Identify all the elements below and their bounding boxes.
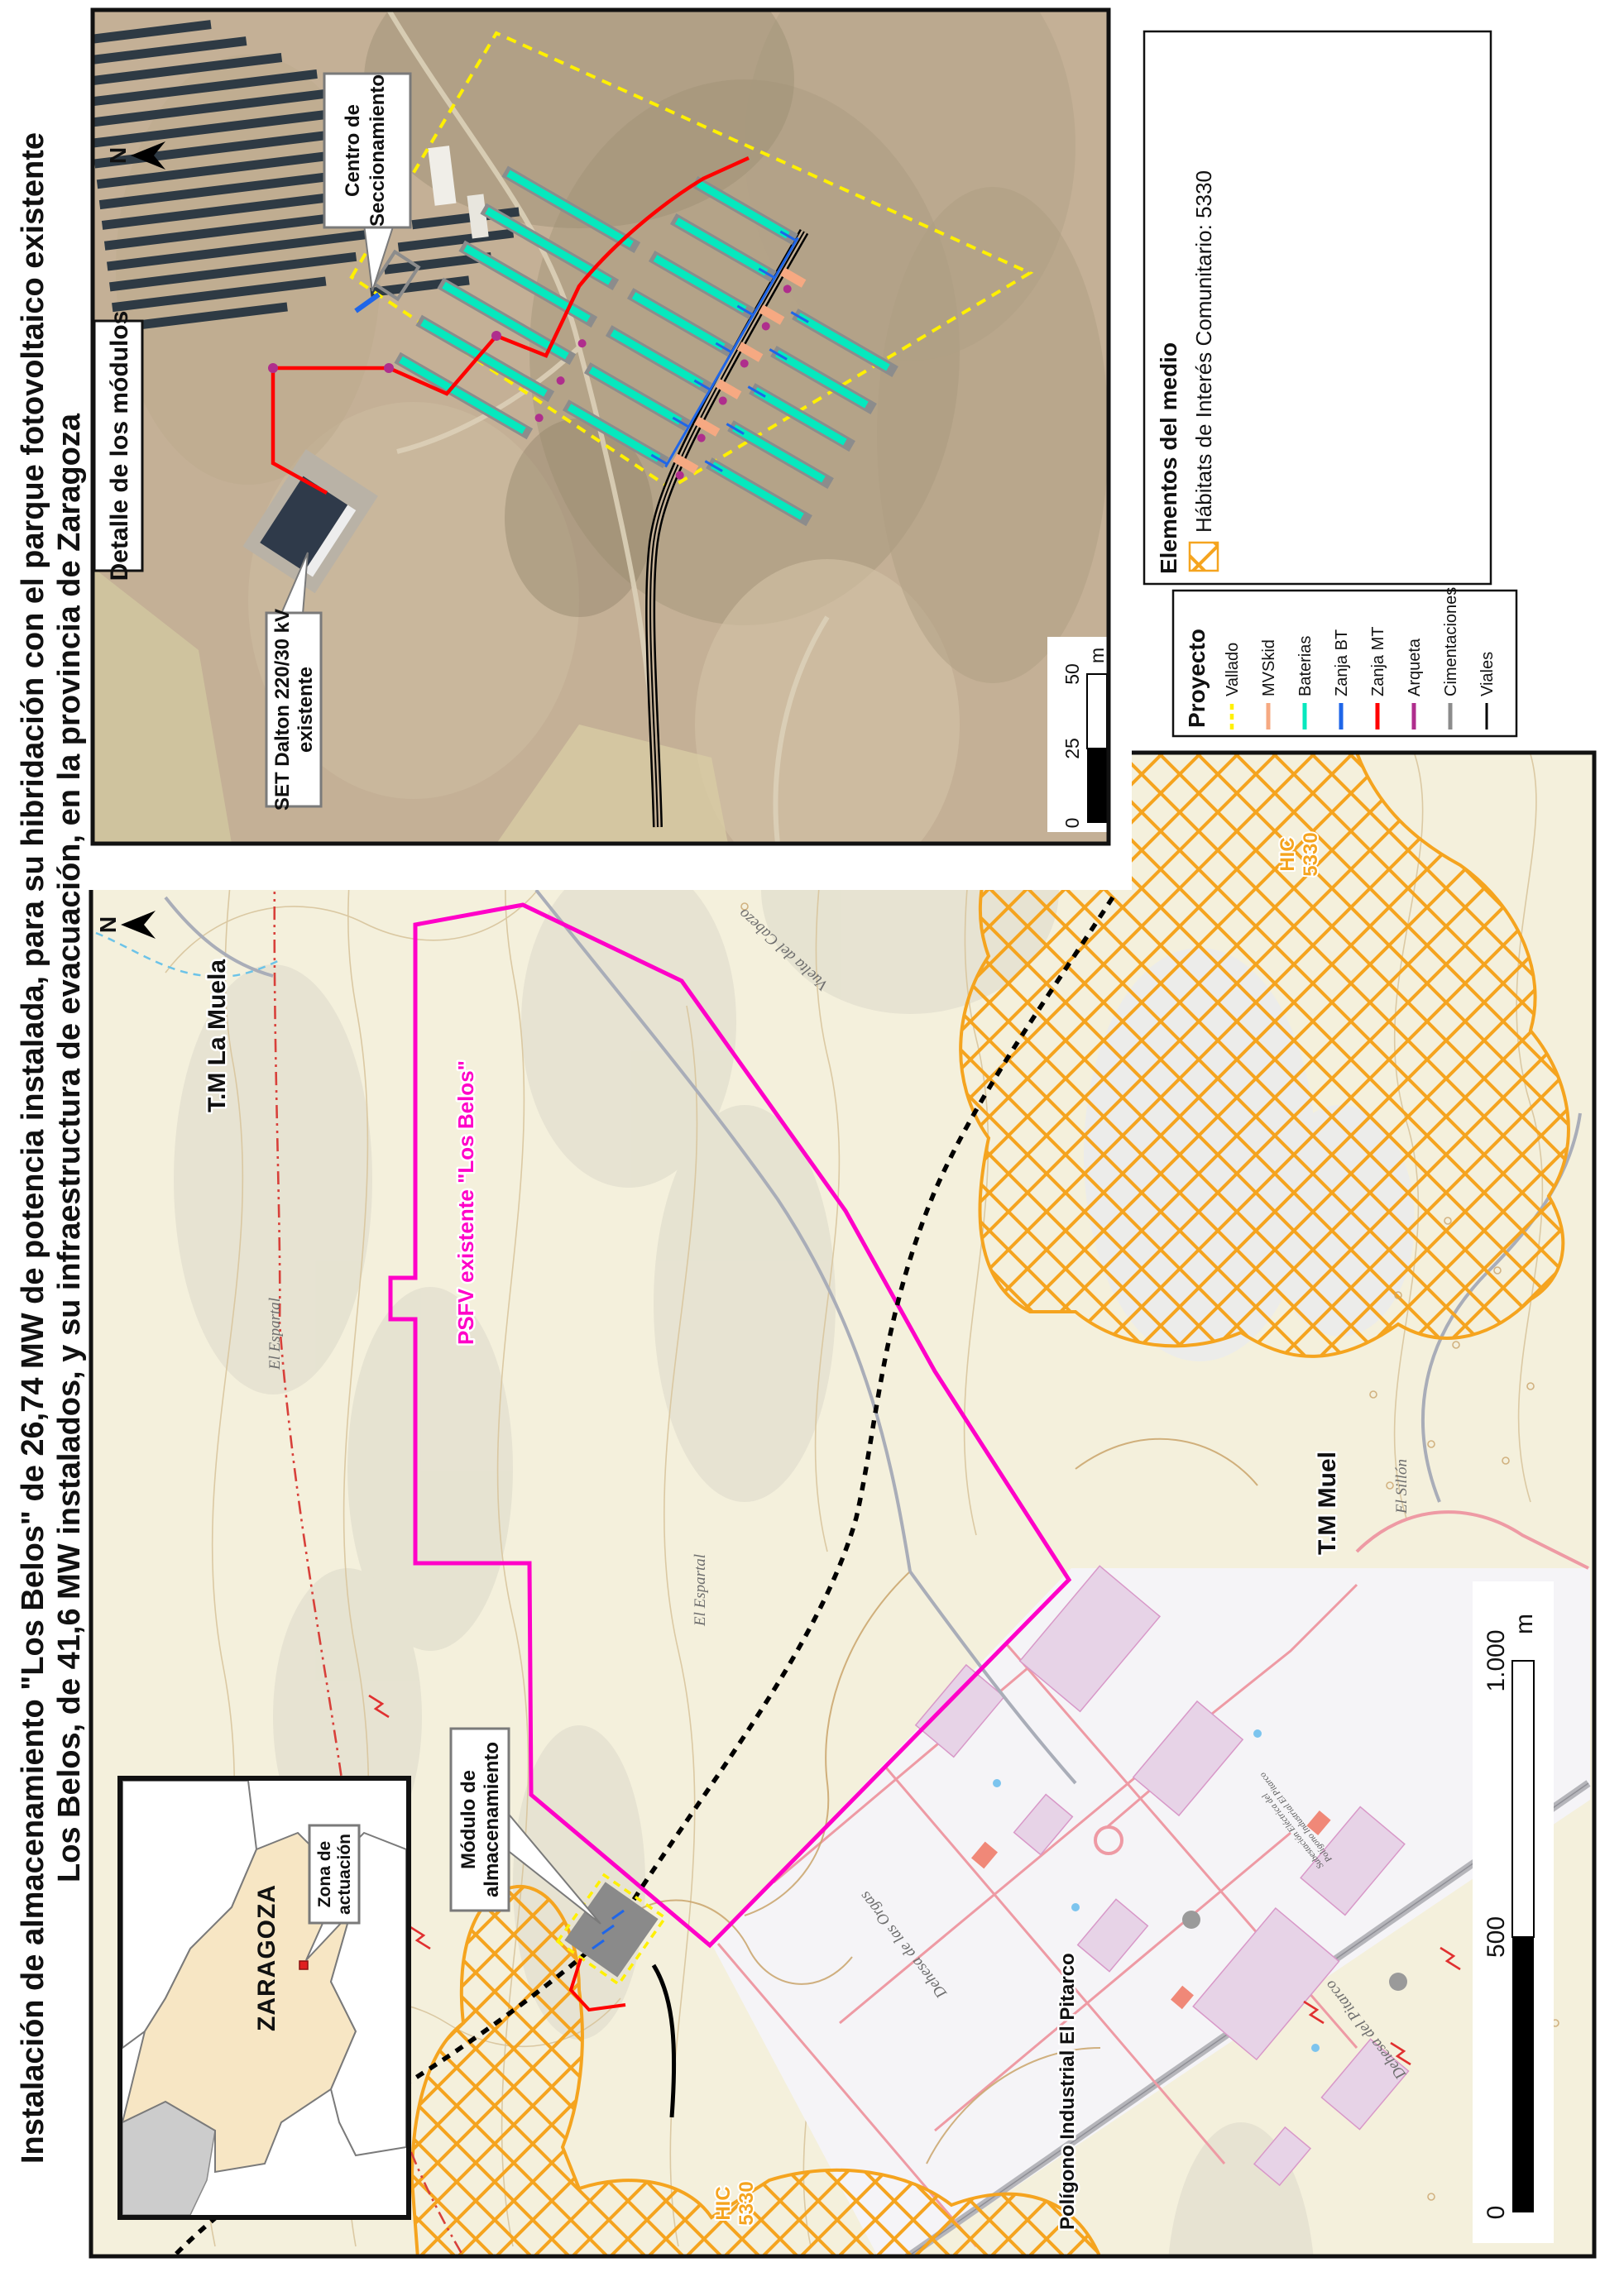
svg-text:Zona de: Zona de xyxy=(315,1841,334,1908)
svg-text:Vallado: Vallado xyxy=(1224,643,1242,696)
label-tm-la-muela: T.M La Muela xyxy=(204,959,231,1112)
svg-text:Arqueta: Arqueta xyxy=(1406,638,1424,696)
roundabout xyxy=(1095,1827,1122,1854)
svg-text:Hábitats de Interés Comunitari: Hábitats de Interés Comunitario: 5330 xyxy=(1191,170,1216,533)
svg-text:actuación: actuación xyxy=(335,1834,354,1915)
svg-text:Zanja MT: Zanja MT xyxy=(1369,627,1387,696)
inset-site-dot xyxy=(299,1961,308,1969)
main-scalebar: 0 500 1.000 m xyxy=(1473,1581,1554,2243)
svg-text:HIC: HIC xyxy=(712,2186,735,2220)
svg-text:almacenamiento: almacenamiento xyxy=(481,1742,503,1897)
title-line-2: Los Belos, de 41,6 MW instalados, y su i… xyxy=(52,413,87,1882)
label-hic-small: HIC 5330 xyxy=(712,2181,758,2225)
svg-text:Detalle de los módulos: Detalle de los módulos xyxy=(106,311,133,581)
svg-text:MVSkid: MVSkid xyxy=(1260,639,1278,696)
svg-text:500: 500 xyxy=(1483,1916,1510,1958)
svg-text:Baterias: Baterias xyxy=(1296,636,1315,696)
label-tm-muel: T.M Muel xyxy=(1314,1452,1341,1555)
svg-text:SET Dalton 220/30 kV: SET Dalton 220/30 kV xyxy=(271,609,294,811)
label-el-sillon: El Sillón xyxy=(1393,1459,1411,1514)
svg-text:m: m xyxy=(1511,1614,1538,1634)
svg-text:0: 0 xyxy=(1483,2206,1510,2220)
svg-text:1.000: 1.000 xyxy=(1483,1629,1510,1691)
svg-text:Seccionamiento: Seccionamiento xyxy=(366,74,389,227)
svg-text:m: m xyxy=(1086,648,1108,663)
title-line-1: Instalación de almacenamiento "Los Belos… xyxy=(16,132,50,2164)
svg-text:Centro de: Centro de xyxy=(342,104,364,197)
svg-text:5330: 5330 xyxy=(1300,832,1322,876)
svg-text:N: N xyxy=(95,916,121,933)
map-sheet: T.M La Muela T.M Muel PSFV existente "Lo… xyxy=(0,0,1624,2296)
svg-text:Cimentaciones: Cimentaciones xyxy=(1442,587,1460,696)
label-psfv: PSFV existente "Los Belos" xyxy=(453,1060,478,1345)
page-title: Instalación de almacenamiento "Los Belos… xyxy=(16,132,87,2164)
svg-text:N: N xyxy=(105,147,131,164)
label-hic-large: HIC 5330 xyxy=(1277,832,1322,876)
svg-text:Viales: Viales xyxy=(1478,652,1497,696)
legend-item-habitats: Hábitats de Interés Comunitario: 5330 xyxy=(1190,170,1218,571)
detail-panel: Centro de Seccionamiento SET Dalton 220/… xyxy=(79,0,1122,890)
label-poligono: Polígono Industrial El Pitarco xyxy=(1056,1953,1079,2230)
svg-text:Módulo de: Módulo de xyxy=(457,1770,480,1869)
svg-text:0: 0 xyxy=(1061,818,1083,829)
detail-header: Detalle de los módulos xyxy=(94,311,142,581)
svg-text:existente: existente xyxy=(295,667,317,753)
svg-text:25: 25 xyxy=(1061,738,1083,759)
main-map: T.M La Muela T.M Muel PSFV existente "Lo… xyxy=(91,753,1594,2296)
svg-text:HIC: HIC xyxy=(1277,837,1299,871)
legend-medio: Elementos del medio Hábitats de Interés … xyxy=(1144,31,1491,584)
svg-text:Zanja BT: Zanja BT xyxy=(1333,629,1351,696)
inset-map: ZARAGOZA Zona de actuación xyxy=(120,1778,409,2217)
screenshot-viewport: T.M La Muela T.M Muel PSFV existente "Lo… xyxy=(0,0,1624,2296)
legend-proyecto-title: Proyecto xyxy=(1184,629,1210,728)
label-el-espartal-2: El Espartal xyxy=(692,1554,709,1627)
svg-text:5330: 5330 xyxy=(735,2181,758,2225)
legend-medio-title: Elementos del medio xyxy=(1156,342,1181,574)
svg-text:50: 50 xyxy=(1061,663,1083,685)
inset-region-label: ZARAGOZA xyxy=(253,1884,280,2031)
legend-proyecto: Proyecto Vallado MVSkid Baterias Zanja B… xyxy=(1173,587,1516,736)
label-el-espartal-1: El Espartal xyxy=(266,1298,284,1370)
